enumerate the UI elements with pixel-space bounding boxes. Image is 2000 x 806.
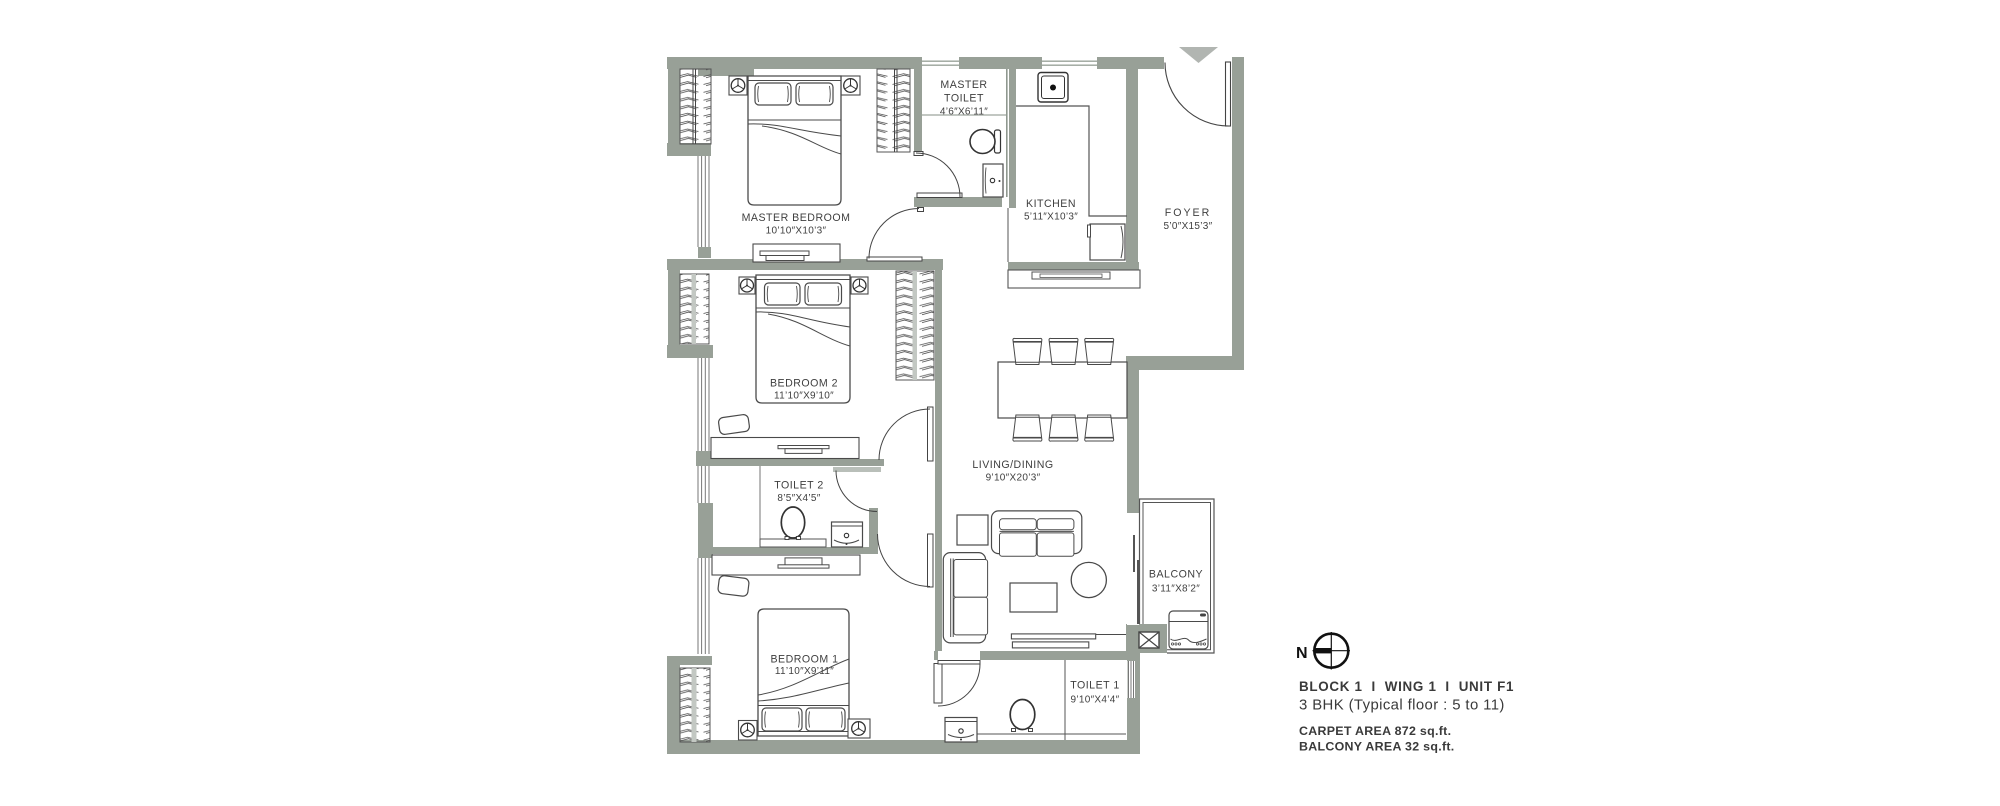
- svg-text:TOILET 2: TOILET 2: [774, 480, 824, 492]
- svg-text:CARPET AREA 872 sq.ft.: CARPET AREA 872 sq.ft.: [1299, 724, 1451, 738]
- svg-text:10’10″X10’3″: 10’10″X10’3″: [766, 226, 827, 237]
- svg-text:8’5″X4’5″: 8’5″X4’5″: [777, 493, 820, 504]
- svg-text:9’10″X4’4″: 9’10″X4’4″: [1070, 695, 1119, 706]
- svg-text:11’10″X9’11″: 11’10″X9’11″: [775, 666, 834, 677]
- svg-text:BLOCK 1 I WING 1 I UNIT F1: BLOCK 1 I WING 1 I UNIT F1: [1299, 679, 1514, 694]
- svg-text:5’0″X15’3″: 5’0″X15’3″: [1163, 221, 1212, 232]
- svg-text:LIVING/DINING: LIVING/DINING: [972, 459, 1053, 471]
- svg-text:9’10″X20’3″: 9’10″X20’3″: [986, 473, 1041, 484]
- svg-text:3’11″X8’2″: 3’11″X8’2″: [1152, 584, 1200, 595]
- svg-text:4’6″X6’11″: 4’6″X6’11″: [940, 107, 988, 118]
- svg-text:TOILET: TOILET: [944, 93, 984, 105]
- svg-text:N: N: [1296, 645, 1308, 662]
- svg-text:BEDROOM 1: BEDROOM 1: [770, 654, 838, 666]
- svg-text:5’11″X10’3″: 5’11″X10’3″: [1024, 212, 1078, 223]
- svg-text:MASTER: MASTER: [940, 79, 987, 91]
- svg-text:KITCHEN: KITCHEN: [1026, 198, 1076, 210]
- svg-text:3 BHK (Typical floor : 5 to 11: 3 BHK (Typical floor : 5 to 11): [1299, 698, 1505, 714]
- svg-text:BEDROOM 2: BEDROOM 2: [770, 378, 838, 390]
- svg-text:11’10″X9’10″: 11’10″X9’10″: [774, 391, 834, 402]
- svg-text:BALCONY AREA 32 sq.ft.: BALCONY AREA 32 sq.ft.: [1299, 740, 1455, 754]
- svg-text:TOILET 1: TOILET 1: [1070, 680, 1120, 692]
- svg-text:FOYER: FOYER: [1165, 207, 1212, 219]
- svg-text:MASTER BEDROOM: MASTER BEDROOM: [742, 212, 851, 224]
- svg-text:BALCONY: BALCONY: [1149, 569, 1203, 581]
